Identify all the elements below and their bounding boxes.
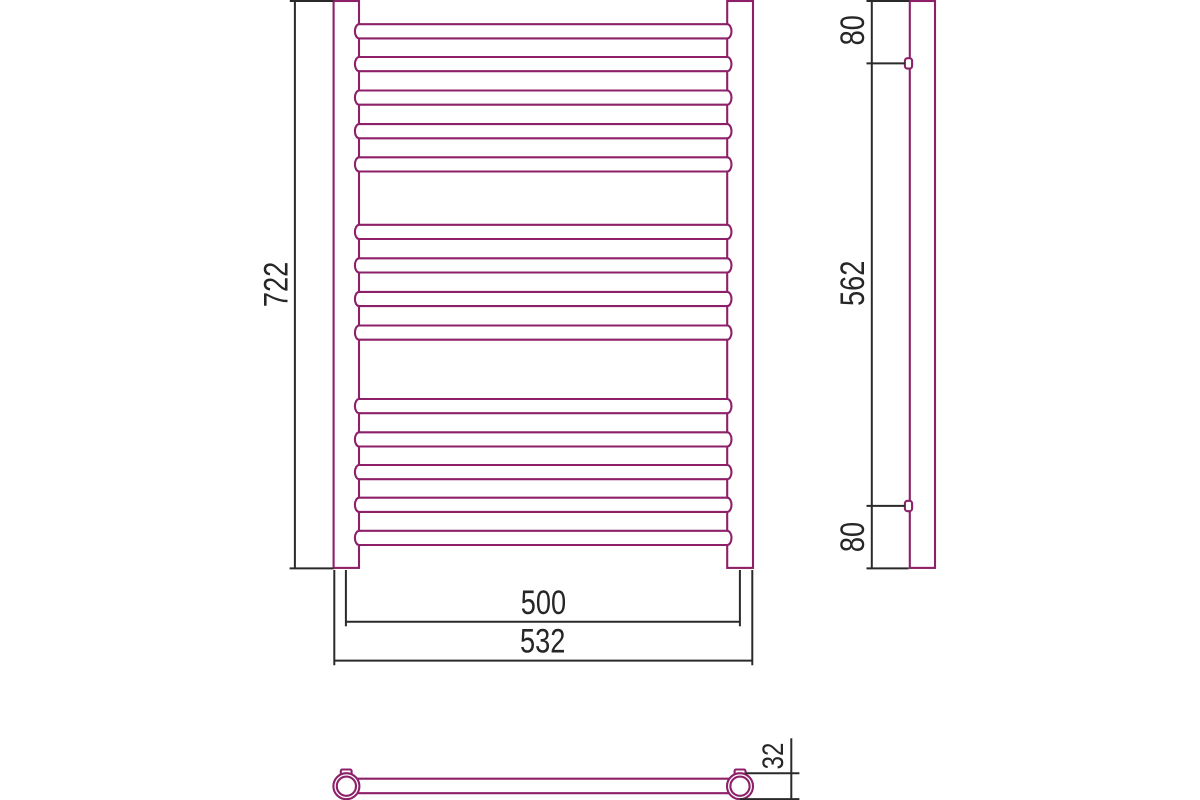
svg-text:80: 80 [833, 522, 872, 552]
svg-text:80: 80 [833, 15, 872, 45]
svg-text:722: 722 [257, 262, 296, 307]
svg-text:500: 500 [521, 583, 566, 622]
svg-text:562: 562 [833, 261, 872, 306]
svg-text:32: 32 [756, 743, 790, 770]
svg-text:532: 532 [520, 622, 565, 661]
